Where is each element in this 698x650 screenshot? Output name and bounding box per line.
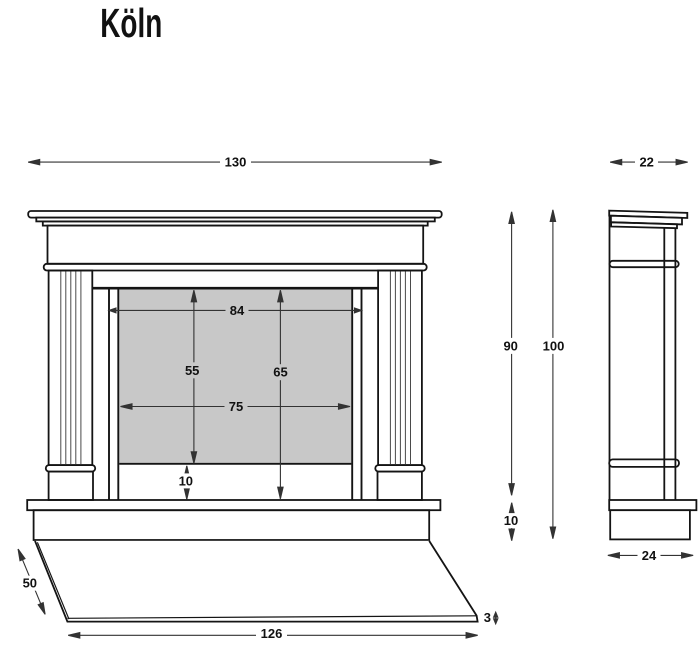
- svg-text:130: 130: [225, 155, 247, 170]
- svg-text:90: 90: [503, 338, 517, 353]
- svg-text:3: 3: [484, 610, 491, 625]
- svg-text:65: 65: [273, 365, 287, 380]
- svg-text:126: 126: [261, 626, 283, 641]
- svg-text:10: 10: [504, 513, 518, 528]
- svg-text:Köln: Köln: [100, 1, 162, 47]
- svg-text:75: 75: [229, 399, 243, 414]
- svg-text:55: 55: [185, 363, 199, 378]
- svg-text:10: 10: [179, 473, 193, 488]
- svg-text:100: 100: [543, 338, 565, 353]
- svg-text:84: 84: [230, 303, 245, 318]
- svg-text:24: 24: [642, 548, 657, 563]
- svg-text:50: 50: [23, 576, 37, 591]
- svg-text:22: 22: [639, 155, 653, 170]
